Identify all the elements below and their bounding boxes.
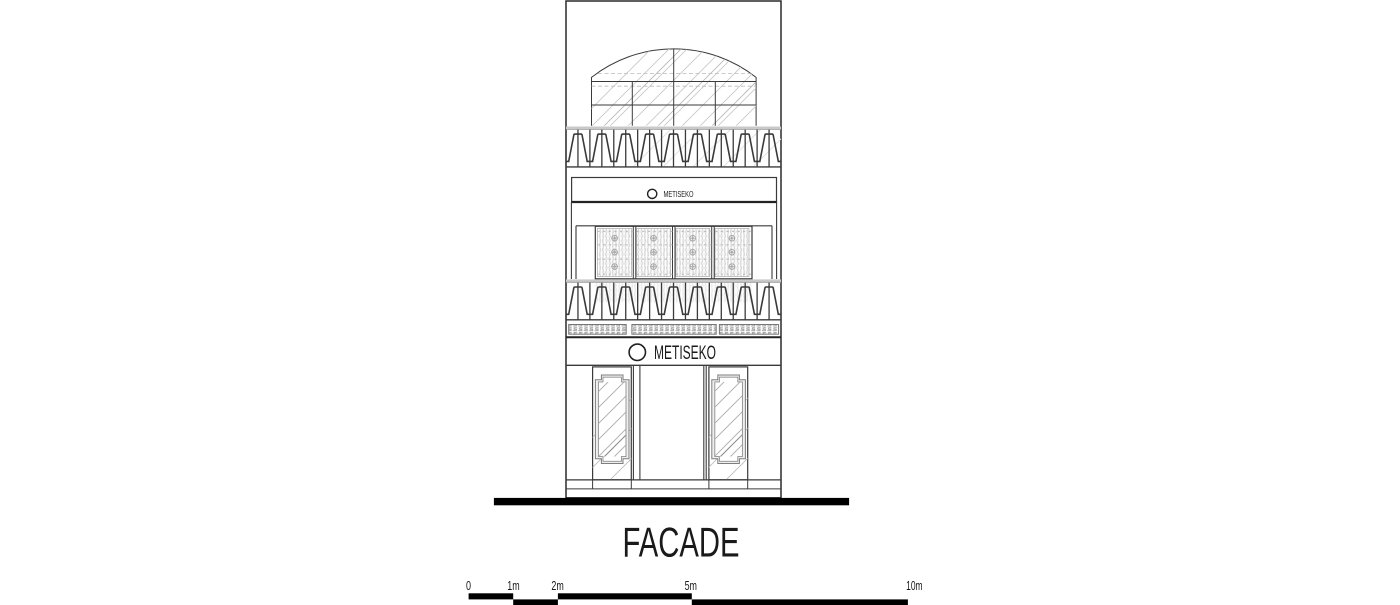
svg-text:METISEKO: METISEKO: [664, 190, 694, 199]
svg-text:METISEKO: METISEKO: [654, 343, 716, 364]
svg-text:5m: 5m: [685, 579, 697, 593]
svg-text:1m: 1m: [507, 579, 519, 593]
svg-text:FACADE: FACADE: [623, 519, 740, 565]
svg-text:0: 0: [466, 579, 471, 593]
svg-text:10m: 10m: [906, 579, 923, 593]
svg-text:2m: 2m: [551, 579, 563, 593]
